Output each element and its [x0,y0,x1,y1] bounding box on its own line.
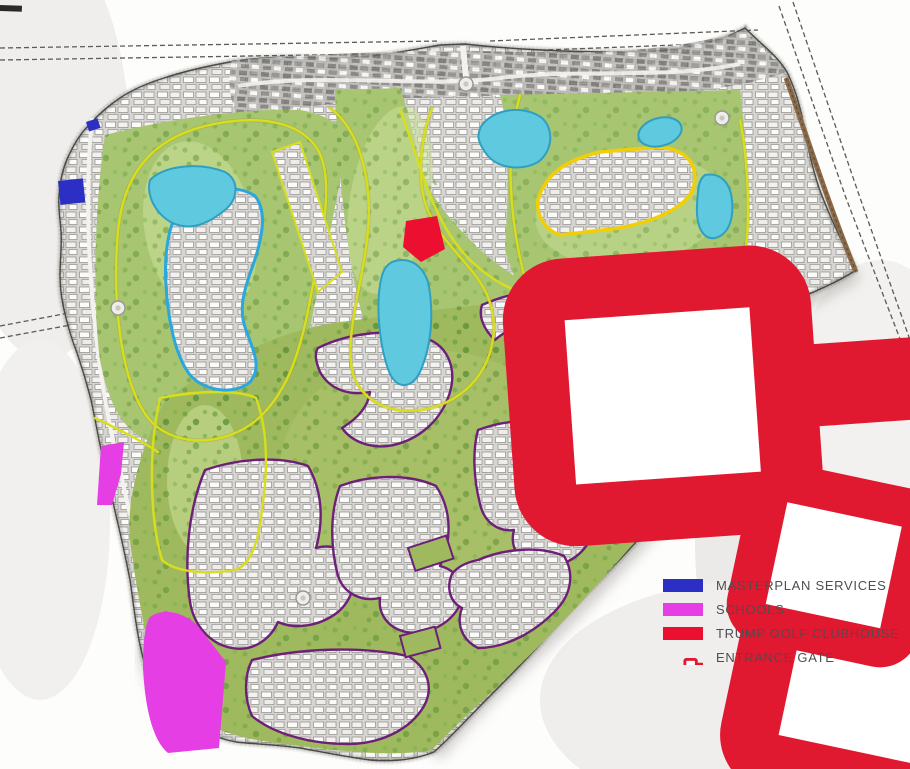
masterplan-services-label: MASTERPLAN SERVICES [716,578,887,593]
entrance-gate-icon [663,650,703,665]
masterplan-service-marker [58,178,85,204]
map-edge-mark [0,5,22,12]
schools-swatch [663,603,703,616]
clubhouse-swatch [663,627,703,640]
schools-label: SCHOOLS [716,602,784,617]
clubhouse-label: TRUMP GOLF CLUBHOUSE [716,626,900,641]
entrance-gate-label: ENTRANCE GATE [716,650,835,665]
masterplan-page: MASTERPLAN SERVICES SCHOOLS TRUMP GOLF C… [0,0,910,769]
masterplan-services-swatch [663,579,703,592]
legend-row-schools: SCHOOLS [663,597,900,621]
legend-row-entrance-gate: ENTRANCE GATE [663,645,900,669]
legend-row-masterplan-services: MASTERPLAN SERVICES [663,573,900,597]
map-legend: MASTERPLAN SERVICES SCHOOLS TRUMP GOLF C… [663,573,900,669]
legend-row-clubhouse: TRUMP GOLF CLUBHOUSE [663,621,900,645]
